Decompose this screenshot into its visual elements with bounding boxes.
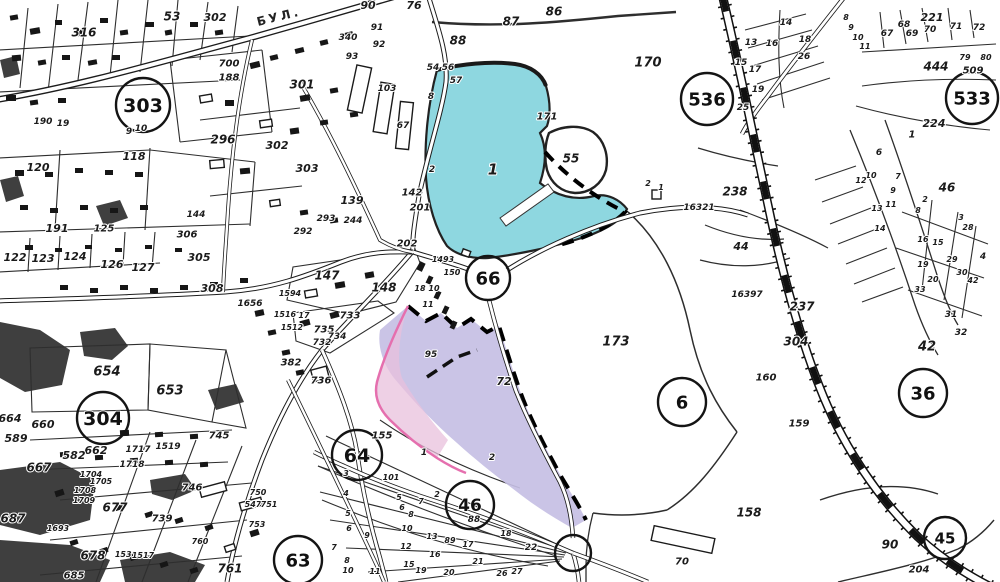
parcel-label: 1693 (47, 524, 70, 533)
parcel-label: 11 (885, 200, 896, 209)
parcel-label: 4 (342, 489, 349, 498)
parcel-label: 160 (756, 373, 777, 384)
parcel-label: 3 (958, 213, 964, 222)
parcel-label: 16397 (731, 290, 763, 300)
parcel-label: 123 (32, 252, 55, 265)
building (300, 209, 309, 215)
building (215, 29, 224, 35)
parcel-line (78, 2, 88, 80)
building (442, 305, 450, 314)
parcel-label: 685 (64, 571, 85, 582)
parcel-label: 8 (428, 92, 434, 102)
building (174, 517, 183, 524)
building (88, 59, 98, 65)
map-canvas: 3033045365336636664466345 53302316700188… (0, 0, 1000, 582)
parcel-label: 21 (472, 557, 483, 566)
parcel-label: 6 (346, 524, 352, 533)
parcel-line (368, 559, 562, 572)
highlight-region (376, 306, 586, 528)
parcel-line (667, 432, 737, 510)
parcel-label: 8 (915, 206, 921, 215)
building (199, 94, 212, 103)
parcel-label: 125 (94, 224, 115, 235)
parcel-label: 1493 (432, 255, 455, 264)
parcel-label: 8 (344, 556, 350, 565)
parcel-label: 444 (922, 59, 948, 73)
building (330, 87, 339, 93)
parcel-line (690, 330, 737, 432)
building (112, 55, 120, 60)
parcel-label: 1519 (155, 442, 180, 452)
zone-circle-label: 304 (83, 408, 123, 430)
building (150, 288, 158, 293)
parcel-label: 750 (250, 488, 267, 497)
parcel-line (745, 14, 806, 30)
parcel-label: 90 (360, 0, 376, 12)
parcel-line (838, 228, 879, 244)
parcel-label: 10 (852, 33, 864, 42)
parcel-label: 88 (468, 515, 481, 525)
parcel-label: 103 (378, 84, 397, 94)
building (75, 168, 83, 173)
parcel-label: 27 (511, 567, 523, 576)
parcel-line (58, 236, 60, 270)
parcel-label: 1517 (132, 551, 155, 560)
parcel-line (902, 212, 988, 244)
parcel-label: 42 (917, 340, 936, 355)
parcel-label: 31 (945, 310, 958, 320)
parcel-label: 72 (973, 23, 986, 33)
shade-blob (80, 328, 128, 360)
building (329, 311, 339, 319)
building (25, 245, 33, 250)
parcel-label: 54 (427, 63, 440, 73)
parcel-label: 9 (890, 186, 896, 195)
zone-circle-label: 45 (935, 529, 956, 547)
building (365, 271, 375, 278)
parcel-line (862, 44, 996, 52)
building (260, 119, 273, 128)
parcel-label: 18 (414, 284, 426, 293)
parcel-label: 90 (882, 537, 899, 551)
parcel-label: 7 (418, 497, 424, 506)
parcel-label: 72 (496, 375, 512, 388)
zone-circle-label: 64 (344, 445, 370, 467)
parcel-label: 67 (397, 121, 410, 131)
building (270, 54, 279, 61)
parcel-label: 5 (396, 493, 402, 502)
building (240, 168, 250, 175)
parcel-label: 142 (402, 188, 423, 199)
parcel-label: 316 (71, 25, 96, 39)
parcel-label: 589 (5, 432, 28, 445)
parcel-label: 201 (410, 203, 431, 214)
parcel-label: 76 (406, 0, 422, 12)
building (120, 29, 129, 35)
building (155, 432, 163, 437)
building (15, 170, 24, 176)
building (90, 288, 98, 293)
building (55, 248, 62, 252)
parcel-label: 653 (156, 384, 183, 399)
parcel-label: 7 (331, 543, 337, 552)
parcel-label: 20 (927, 275, 939, 284)
parcel-label: 13 (871, 204, 883, 213)
building (80, 205, 88, 210)
parcel-label: 88 (450, 33, 467, 47)
parcel-line (210, 186, 302, 196)
parcel-label: 122 (4, 251, 27, 264)
parcel-label: 304 (783, 334, 808, 348)
parcel-label: 28 (962, 223, 974, 232)
building (175, 248, 182, 252)
parcel-label: 150 (444, 268, 461, 277)
parcel-label: 7 (895, 172, 901, 181)
building (85, 245, 92, 249)
parcel-label: 13 (745, 38, 758, 48)
parcel-label: 1 (658, 183, 664, 192)
parcel-label: 67 (881, 29, 894, 39)
parcel-label: 302 (266, 139, 289, 152)
building (30, 27, 41, 35)
parcel-label: 16 (917, 235, 929, 244)
parcel-label: 733 (340, 311, 361, 322)
parcel-line (48, 4, 58, 92)
parcel-label: 93 (346, 52, 359, 62)
parcel-label: 751 (261, 500, 278, 509)
parcel-label: 101 (383, 473, 400, 482)
parcel-label: 204 (909, 565, 930, 576)
parcel-label: 664 (0, 412, 21, 425)
building (30, 99, 39, 105)
parcel-label: 12 (400, 542, 412, 551)
parcel-label: 677 (102, 500, 128, 514)
parcel-label: 2 (922, 195, 928, 204)
parcel-line (200, 108, 300, 120)
building (282, 349, 291, 356)
building (62, 55, 70, 60)
parcel-label: 155 (372, 431, 393, 442)
parcel-label: 15 (932, 238, 944, 247)
parcel-label: 16 (429, 550, 441, 559)
zone-circle-label: 66 (475, 268, 500, 289)
parcel-label: 736 (311, 376, 332, 387)
parcel-label: 654 (93, 365, 120, 380)
parcel-label: 33 (914, 285, 926, 294)
parcel-label: 10 (135, 124, 148, 134)
parcel-label: 1705 (90, 477, 113, 486)
building (190, 434, 198, 439)
parcel-label: 158 (736, 505, 761, 519)
parcel-label: 118 (123, 150, 146, 163)
parcel-label: 12 (855, 176, 867, 185)
parcel-label: 10 (865, 171, 877, 180)
building (165, 29, 173, 35)
parcel-label: 1718 (119, 460, 144, 470)
parcel-label: 25 (737, 103, 750, 113)
parcel-label: 11 (859, 42, 870, 51)
parcel-label: 1 (421, 448, 427, 458)
building (240, 278, 248, 283)
parcel-label: 244 (344, 216, 363, 226)
parcel-label: 9 (848, 23, 854, 32)
parcel-label: 238 (722, 184, 747, 198)
building (210, 159, 225, 168)
parcel-label: 188 (219, 73, 240, 84)
parcel-label: 147 (314, 268, 340, 282)
building (20, 205, 28, 210)
parcel-label: 202 (397, 239, 418, 250)
parcel-label: 16 (766, 39, 779, 49)
parcel-label: 126 (101, 258, 124, 271)
building (225, 100, 234, 106)
parcel-label: 10 (428, 284, 440, 293)
parcel-label: 293 (317, 214, 336, 224)
parcel-line (862, 79, 996, 86)
parcel-label: 53 (164, 9, 181, 23)
parcel-label: 660 (32, 418, 55, 431)
building (651, 526, 715, 554)
parcel-label: 70 (675, 557, 689, 568)
parcel-label: 13 (426, 532, 438, 541)
building (416, 261, 425, 272)
parcel-label: 1708 (74, 486, 97, 495)
parcel-label: 303 (296, 162, 319, 175)
parcel-label: 20 (443, 568, 455, 577)
zone-circle-label: 46 (458, 496, 482, 516)
building (135, 172, 143, 177)
parcel-label: 6 (876, 148, 882, 158)
building (38, 59, 47, 65)
parcel-label: 761 (217, 561, 242, 575)
parcel-label: 95 (425, 350, 438, 360)
parcel-line (55, 150, 60, 230)
zone-circle-label: 6 (676, 392, 689, 413)
parcel-line (0, 224, 250, 232)
building (50, 208, 58, 213)
parcel-label: 753 (249, 520, 266, 529)
parcel-label: 1516 (274, 310, 297, 319)
parcel-label: 678 (80, 548, 105, 562)
parcel-label: 14 (780, 18, 793, 28)
parcel-label: 745 (209, 431, 230, 442)
shade-blob (0, 176, 24, 202)
parcel-label: 1 (909, 130, 916, 141)
parcel-label: 46 (938, 180, 956, 194)
building (105, 170, 113, 175)
parcel-label: 56 (442, 63, 455, 73)
building (120, 285, 128, 290)
building (100, 18, 108, 23)
parcel-label: 1512 (281, 323, 304, 332)
parcel-label: 124 (64, 250, 87, 263)
parcel-label: 16321 (683, 203, 714, 213)
parcel-label: 5 (345, 509, 351, 518)
parcel-line (822, 187, 863, 202)
parcel-label: 4 (979, 252, 986, 262)
parcel-label: 19 (917, 260, 929, 269)
parcel-label: 582 (63, 449, 86, 462)
building (290, 127, 300, 134)
parcel-label: 26 (798, 52, 811, 62)
parcel-label: 71 (950, 22, 963, 32)
parcel-label: 2 (429, 165, 435, 175)
parcel-label: 14 (874, 224, 886, 233)
parcel-line (30, 430, 232, 440)
parcel-line (628, 212, 690, 330)
parcel-label: 237 (789, 299, 815, 313)
parcel-label: 1594 (279, 289, 302, 298)
parcel-label: 9 (364, 531, 370, 540)
parcel-label: 18 (799, 35, 812, 45)
parcel-line (830, 208, 871, 224)
zone-circle-label: 303 (123, 95, 163, 117)
parcel-label: 89 (444, 536, 456, 545)
parcel-line (740, 210, 828, 248)
parcel-line (150, 150, 255, 162)
parcel-line (846, 248, 887, 264)
parcel-line (110, 0, 118, 76)
parcel-label: 191 (46, 222, 69, 235)
parcel-line (28, 238, 30, 272)
building (270, 199, 281, 206)
parcel-label: 3 (343, 469, 349, 478)
parcel-label: 18 (500, 529, 512, 538)
parcel-label: 159 (789, 419, 810, 430)
buildings (6, 14, 715, 574)
building (190, 22, 198, 27)
parcel-label: 746 (182, 483, 203, 494)
parcel-label: 127 (132, 261, 155, 274)
parcel-label: 57 (450, 76, 463, 86)
parcel-label: 92 (373, 40, 386, 50)
building (60, 285, 68, 290)
parcel-label: 8 (843, 13, 849, 22)
parcel-line (145, 148, 150, 230)
building (200, 462, 208, 467)
parcel-line (815, 166, 856, 180)
parcel-label: 80 (980, 53, 992, 62)
zone-circle-label: 63 (285, 550, 310, 571)
parcel-label: 148 (371, 280, 396, 294)
parcel-label: 15 (403, 560, 415, 569)
parcel-line (593, 510, 667, 515)
parcel-label: 1709 (73, 496, 96, 505)
parcel-label: 306 (177, 230, 198, 241)
parcel-label: 739 (152, 514, 173, 525)
parcel-label: 17 (462, 540, 474, 549)
parcel-label: 9 (126, 127, 132, 137)
building (12, 55, 21, 62)
building (295, 47, 305, 54)
zone-circle-label: 536 (688, 89, 726, 110)
parcel-label: 302 (204, 11, 227, 24)
parcel-label: 26 (496, 569, 508, 578)
parcel-label: 120 (27, 161, 50, 174)
building (249, 61, 260, 69)
building (55, 20, 62, 25)
parcel-label: 700 (219, 59, 240, 70)
parcel-label: 19 (57, 119, 70, 129)
parcel-line (854, 268, 895, 284)
parcel-label: 662 (85, 444, 108, 457)
parcel-label: 173 (602, 335, 629, 350)
building (304, 289, 317, 298)
parcel-label: 87 (503, 14, 520, 28)
parcel-line (90, 234, 92, 268)
building (254, 309, 264, 317)
building (69, 539, 78, 546)
parcel-label: 11 (422, 300, 433, 309)
parcel-label: 86 (546, 4, 563, 18)
parcel-label: 44 (732, 240, 748, 253)
building (204, 524, 213, 531)
building (180, 285, 188, 290)
parcel-label: 10 (342, 566, 354, 575)
parcel-line (958, 520, 994, 549)
parcel-label: 91 (371, 23, 384, 33)
parcel-label: 170 (634, 56, 661, 71)
parcel-label: 55 (563, 151, 580, 165)
parcel-label: 305 (188, 251, 211, 264)
parcel-label: 221 (921, 11, 944, 24)
parcel-label: 732 (313, 338, 332, 348)
parcel-label: 171 (537, 112, 558, 123)
parcel-label: 547 (245, 500, 262, 509)
parcel-label: 2 (645, 179, 651, 188)
parcel-label: 19 (415, 566, 427, 575)
building (165, 460, 173, 465)
building (58, 98, 66, 103)
parcel-label: 2 (489, 453, 495, 463)
building (140, 205, 148, 210)
parcel-label: 11 (369, 567, 380, 576)
parcel-label: 340 (339, 33, 358, 43)
parcel-label: 22 (525, 543, 538, 553)
parcel-label: 667 (26, 460, 52, 474)
parcel-label: 1717 (125, 445, 151, 455)
building (6, 95, 16, 101)
parcel-label: 17 (298, 311, 310, 320)
parcel-label: 224 (923, 117, 946, 130)
parcel-label: 42 (966, 276, 979, 285)
parcel-line (170, 60, 180, 142)
parcel-label: 292 (294, 227, 313, 237)
parcel-label: 687 (0, 511, 26, 525)
building (145, 245, 152, 249)
zone-circle-label: 36 (910, 383, 935, 404)
parcel-label: 296 (210, 132, 235, 146)
parcel-label: 30 (956, 268, 968, 277)
building (347, 65, 371, 113)
parcel-label: 144 (187, 210, 206, 220)
parcel-label: 190 (34, 117, 53, 127)
building (249, 529, 259, 537)
parcel-label: 32 (955, 328, 968, 338)
parcel-line (250, 162, 255, 226)
parcel-label: 8 (408, 510, 414, 519)
parcel-label: 15 (735, 58, 748, 68)
parcel-label: 308 (201, 282, 224, 295)
parcel-label: 70 (924, 25, 937, 35)
building (268, 329, 277, 336)
parcel-label: 760 (192, 537, 209, 546)
parcel-label: 17 (749, 65, 762, 75)
parcel-label: 1 (488, 160, 498, 178)
building (10, 14, 19, 20)
cadastral-map: 3033045365336636664466345 53302316700188… (0, 0, 1000, 582)
parcel-label: 69 (906, 29, 919, 39)
